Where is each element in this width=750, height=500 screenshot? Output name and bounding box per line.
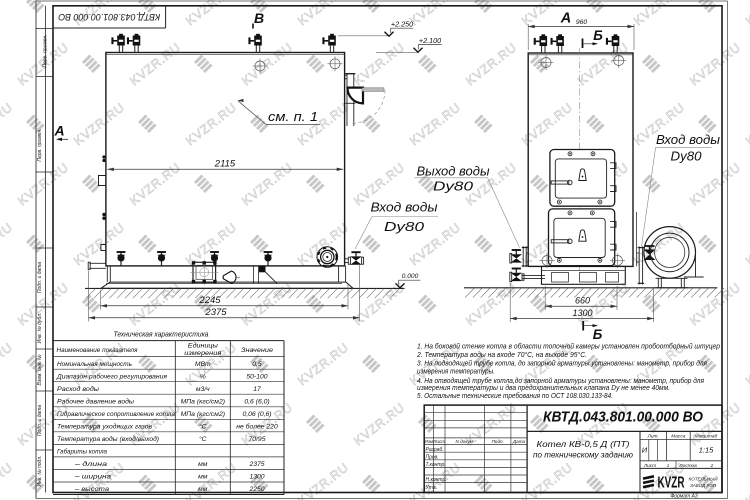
svg-text:Единицы: Единицы [188,342,218,350]
svg-text:°С: °С [199,435,207,443]
svg-text:Б: Б [593,28,603,43]
svg-text:960: 960 [576,19,588,26]
svg-text:КВТД.043.801.00.000 ВО: КВТД.043.801.00.000 ВО [543,410,704,426]
svg-text:0,06 (0,6): 0,06 (0,6) [242,411,271,418]
svg-text:660: 660 [575,296,590,306]
svg-text:Листов: Листов [678,463,697,469]
svg-text:Лист: Лист [643,463,656,469]
svg-text:Масса: Масса [671,434,686,440]
svg-text:Расход воды: Расход воды [57,385,99,393]
svg-text:КВТД.043.801.00.000 ВО: КВТД.043.801.00.000 ВО [58,12,160,22]
svg-text:2375: 2375 [204,307,227,318]
svg-text:Наименование показателя: Наименование показателя [57,347,138,354]
svg-text:Разраб.: Разраб. [426,447,444,453]
svg-text:Подп. и дата: Подп. и дата [37,405,43,437]
svg-text:Температура уходящих газов: Температура уходящих газов [57,423,152,431]
svg-text:Инв. № подл.: Инв. № подл. [37,455,43,486]
svg-text:Габариты котла: Габариты котла [57,448,107,456]
svg-text:Подп.: Подп. [492,439,504,444]
svg-text:0.000: 0.000 [402,273,419,280]
svg-text:Температура воды (вход/выход): Температура воды (вход/выход) [57,435,159,443]
svg-text:50-100: 50-100 [246,373,267,380]
svg-text:Перв. примен.: Перв. примен. [43,34,49,67]
svg-text:мм: мм [198,486,208,493]
svg-text:Пров.: Пров. [426,454,439,460]
svg-text:Дата: Дата [512,439,526,444]
svg-text:В: В [254,10,264,26]
svg-text:1. На боковой стенке котла в: 1. На боковой стенке котла в области топ… [417,343,720,351]
svg-text:Перв. примен.: Перв. примен. [37,128,43,161]
svg-text:Подп. и дата: Подп. и дата [37,262,43,294]
svg-text:измерения температуры.: измерения температуры. [417,368,495,375]
svg-text:И: И [642,446,648,455]
svg-text:2115: 2115 [214,159,236,170]
svg-text:Формат А3: Формат А3 [670,494,698,500]
svg-text:Номинальная мощность: Номинальная мощность [57,361,132,368]
svg-text:Значение: Значение [241,347,273,354]
svg-text:– длина: – длина [74,460,108,468]
svg-text:KVZR: KVZR [658,474,685,491]
svg-text:ЗАВОД РЭП: ЗАВОД РЭП [690,483,717,488]
svg-text:2. Температура воды на входе: 2. Температура воды на входе 70°С, на вы… [416,351,587,359]
svg-text:Б: Б [593,327,603,342]
svg-text:2375: 2375 [248,461,264,468]
svg-text:17: 17 [253,386,261,393]
svg-text:Dy80: Dy80 [671,149,703,164]
svg-text:по техническому заданию: по техническому заданию [533,451,633,460]
svg-text:Масштаб: Масштаб [695,434,718,440]
svg-text:мм: мм [198,474,208,481]
svg-text:2: 2 [710,463,714,469]
svg-text:Вход воды: Вход воды [656,132,720,147]
svg-text:Инв. № дубл.: Инв. № дубл. [37,313,43,344]
svg-text:3. На подводящей трубе котла,: 3. На подводящей трубе котла, до запорно… [417,360,707,368]
svg-text:МПа (кгс/см2): МПа (кгс/см2) [181,411,225,418]
svg-text:1300: 1300 [249,474,264,481]
svg-text:МВт: МВт [195,361,211,368]
svg-text:измерения: измерения [184,350,221,357]
svg-text:Лит.: Лит. [647,434,659,440]
svg-text:+2.100: +2.100 [419,36,441,45]
svg-text:– ширина: – ширина [74,474,111,481]
svg-text:0,6 (6,0): 0,6 (6,0) [244,398,269,405]
svg-text:А: А [53,123,64,139]
svg-text:°С: °С [199,423,207,431]
svg-text:5. Остальные технические треб: 5. Остальные технические требования по О… [417,392,613,400]
svg-text:Диапазон рабочего регулировани: Диапазон рабочего регулирования [56,372,167,380]
svg-text:мм: мм [198,461,208,468]
svg-text:Техническая характеристика: Техническая характеристика [114,330,209,339]
svg-text:МПа (кгс/см2): МПа (кгс/см2) [181,398,225,405]
svg-text:2250: 2250 [248,486,264,493]
svg-text:2245: 2245 [198,295,221,306]
svg-text:Взам. инв. №: Взам. инв. № [37,354,43,386]
svg-text:не более 220: не более 220 [236,423,278,431]
svg-text:– высота: – высота [74,486,109,493]
svg-text:КОТЕЛЬНЫЙ: КОТЕЛЬНЫЙ [689,475,719,482]
svg-text:Н.контр.: Н.контр. [426,477,447,483]
svg-text:А: А [560,11,571,27]
svg-text:+2.250: +2.250 [391,20,413,29]
svg-text:70/95: 70/95 [248,436,265,443]
svg-text:Выход воды: Выход воды [417,164,490,179]
svg-text:1: 1 [667,463,670,469]
svg-text:1:15: 1:15 [699,446,714,455]
svg-text:см. п. 1: см. п. 1 [268,110,318,124]
svg-text:Лист: Лист [432,439,445,444]
svg-text:м3/ч: м3/ч [196,386,210,393]
svg-text:4. На отводящей трубе котла,д: 4. На отводящей трубе котла,до запорной … [417,377,704,385]
svg-text:измерения температуры и два пр: измерения температуры и два предохраните… [417,384,670,392]
svg-text:Dy80: Dy80 [433,179,474,194]
svg-text:Вход воды: Вход воды [371,200,438,215]
svg-text:1300: 1300 [572,308,592,318]
svg-text:Гидравлическое сопротивление к: Гидравлическое сопротивление котла [57,410,175,418]
svg-text:Dy80: Dy80 [384,219,425,234]
svg-text:Утв.: Утв. [426,485,437,491]
svg-text:%: % [200,373,206,380]
svg-text:Т.контр.: Т.контр. [426,462,446,468]
svg-text:N докум.: N докум. [456,439,475,444]
svg-text:0,5: 0,5 [252,361,262,368]
svg-text:Котел КВ-0,5 Д (ПТ): Котел КВ-0,5 Д (ПТ) [537,440,630,449]
svg-text:Рабочее давление воды: Рабочее давление воды [57,397,134,405]
